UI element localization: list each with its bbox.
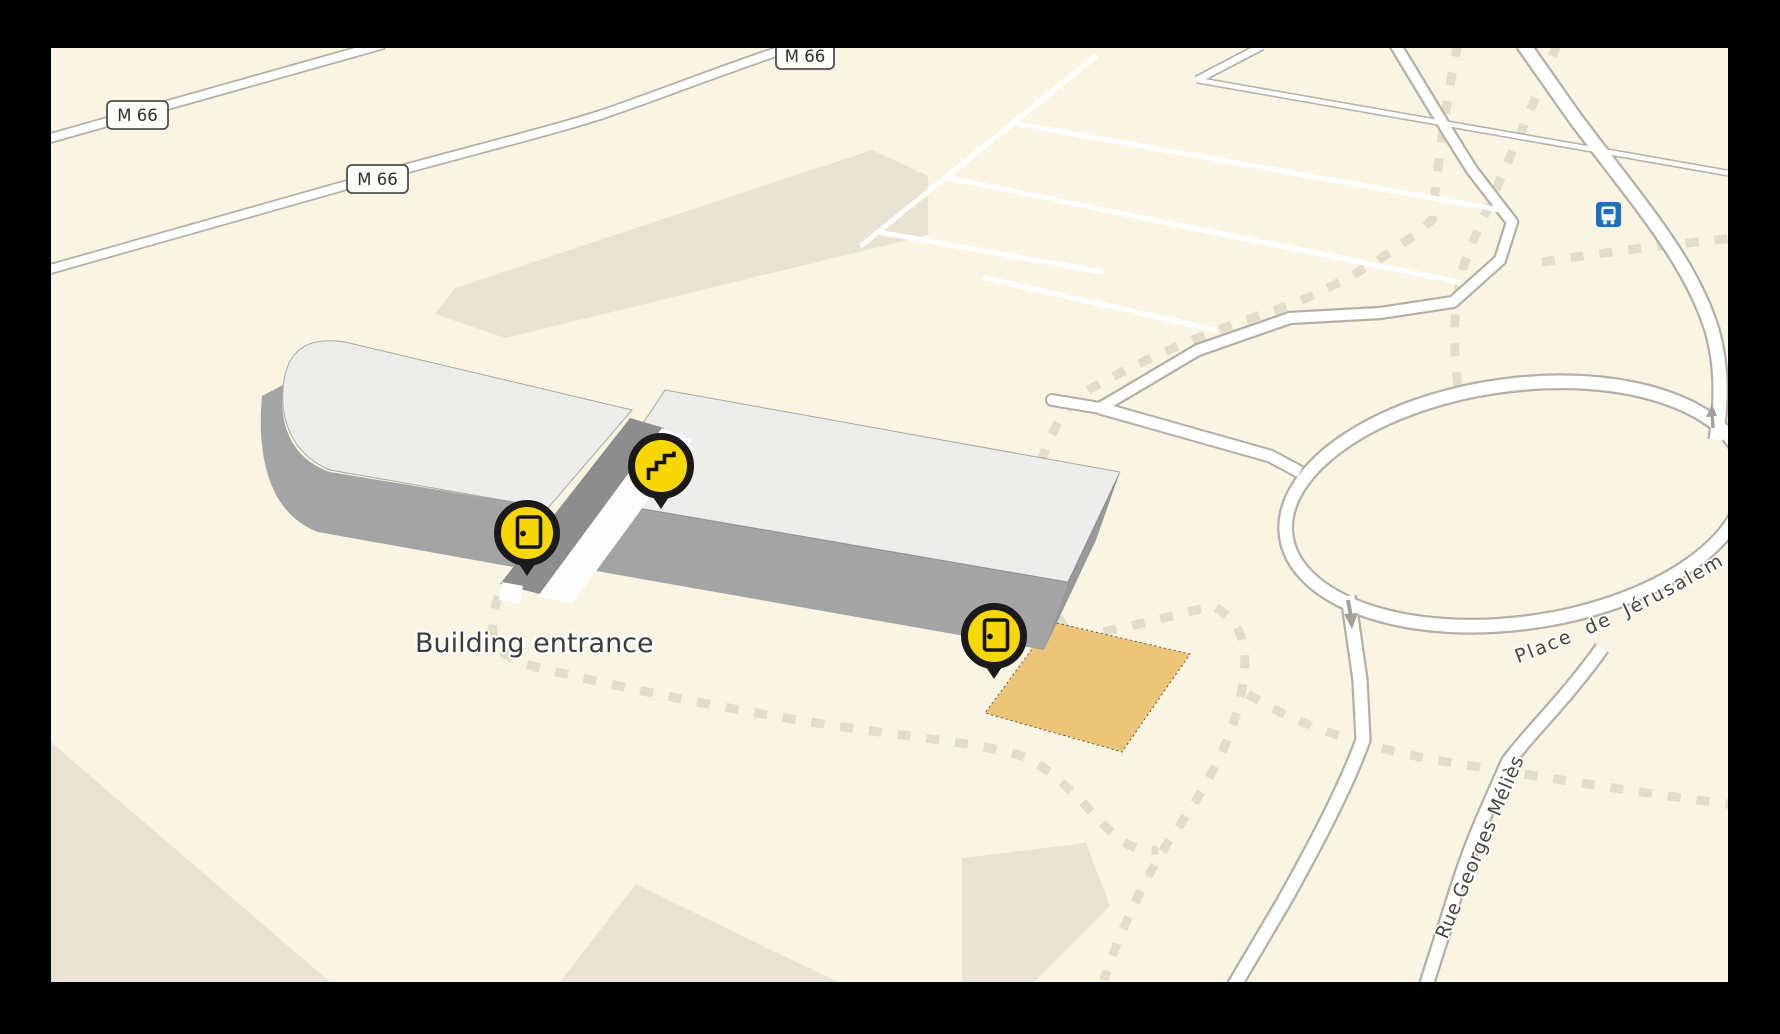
- shield-label: M 66: [357, 170, 397, 189]
- shield-label: M 66: [785, 48, 825, 66]
- bus-stop-icon[interactable]: [1596, 202, 1621, 227]
- road-shield-m66: M 66: [107, 101, 168, 129]
- road-shield-m66: M 66: [347, 165, 408, 193]
- shield-label: M 66: [117, 106, 157, 125]
- map-viewport: M 66 M 66 M 66 Place de Jérusalem Rue Ge…: [51, 48, 1728, 982]
- building-entrance-label: Building entrance: [415, 628, 654, 659]
- map-canvas[interactable]: M 66 M 66 M 66 Place de Jérusalem Rue Ge…: [51, 48, 1728, 982]
- road-shield-m66: M 66: [776, 48, 834, 69]
- screenshot-root: { "map": { "labels": { "building_entranc…: [0, 0, 1780, 1034]
